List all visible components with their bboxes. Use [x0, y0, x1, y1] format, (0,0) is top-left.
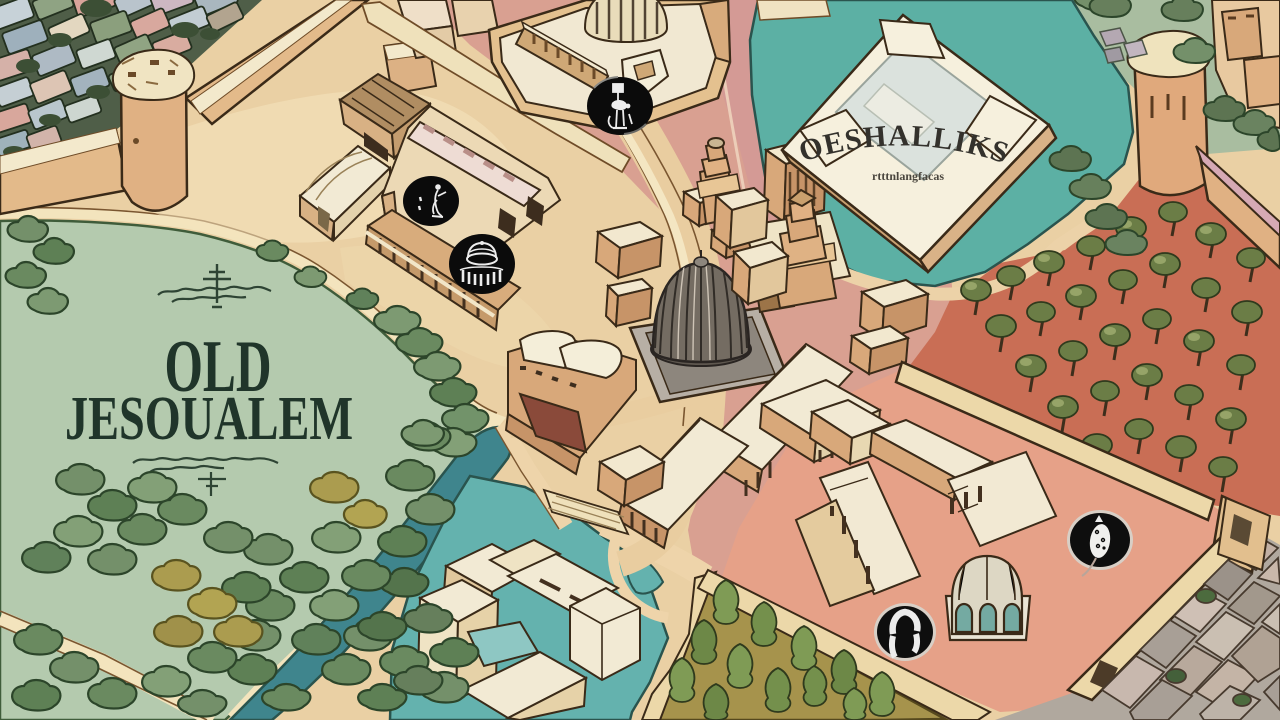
svg-text:rtttnlangfacas: rtttnlangfacas: [872, 169, 944, 183]
svg-text:JESOUALEM: JESOUALEM: [65, 385, 353, 453]
